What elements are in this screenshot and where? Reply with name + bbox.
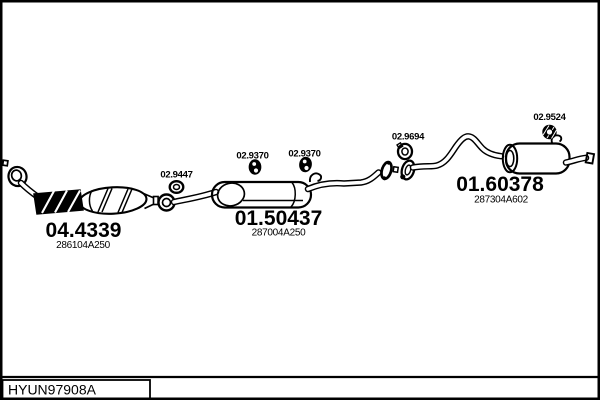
- label-front-pipe-code: 04.4339: [46, 219, 122, 242]
- front-to-center-pipe: [174, 192, 216, 202]
- exhaust-diagram: 02.9447 04.4339 286104A250 02.9370 02.93…: [0, 0, 600, 400]
- rear-muffler: [503, 135, 570, 173]
- tailpipe-tip-icon: [586, 153, 594, 164]
- hanger-grommet-1-icon: [249, 160, 260, 174]
- flex-pipe-icon: [34, 190, 83, 214]
- label-hanger-tail: 02.9524: [533, 112, 566, 123]
- label-hanger-center-2: 02.9370: [288, 149, 320, 160]
- label-rear-muffler-code: 01.60378: [456, 173, 544, 196]
- label-gasket-front: 02.9447: [160, 170, 192, 181]
- footer-catalog-code: HYUN97908A: [8, 382, 97, 398]
- label-rear-muffler-ref: 287304A602: [474, 195, 528, 206]
- hanger-ring-rear-pipe-icon: [397, 143, 412, 159]
- joint-bolt-icon: [393, 167, 398, 173]
- center-muffler: [212, 173, 321, 208]
- exhaust-parts-diagram-page: 02.9447 04.4339 286104A250 02.9370 02.93…: [0, 0, 600, 400]
- label-hanger-rear-pipe: 02.9694: [392, 132, 425, 143]
- gasket-ring-icon: [170, 181, 184, 193]
- joint-flange-front: [379, 160, 393, 182]
- flange-bolt-icon: [3, 160, 8, 166]
- hanger-ring-tail-icon: [542, 125, 556, 139]
- label-hanger-center-1: 02.9370: [236, 151, 268, 162]
- catalytic-converter: [79, 186, 158, 216]
- rear-pipe: [413, 136, 501, 167]
- label-front-pipe-ref: 286104A250: [56, 240, 110, 251]
- label-center-muffler-ref: 287004A250: [252, 228, 306, 239]
- muffler-hanger-rod-icon: [310, 173, 321, 182]
